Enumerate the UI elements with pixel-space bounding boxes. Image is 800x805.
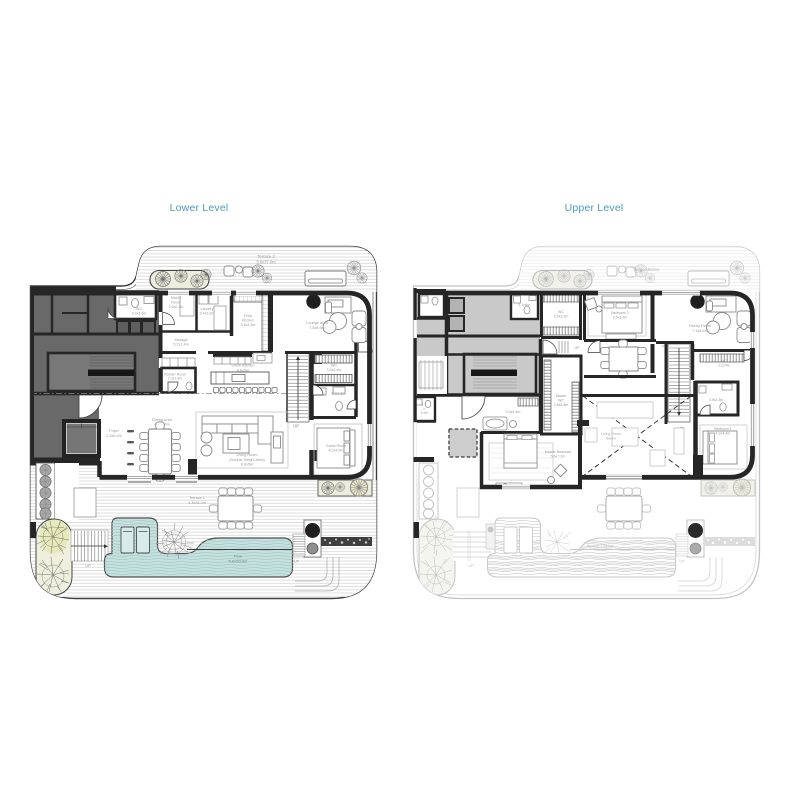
svg-text:Terrace 1 Below: Terrace 1 Below bbox=[586, 544, 613, 548]
svg-text:7.6x4.5m: 7.6x4.5m bbox=[309, 326, 325, 330]
svg-text:UP: UP bbox=[575, 346, 581, 350]
svg-text:1.2x4m: 1.2x4m bbox=[718, 364, 730, 368]
svg-text:2.4m: 2.4m bbox=[420, 411, 427, 415]
svg-text:5.6x7.3m: 5.6x7.3m bbox=[551, 455, 566, 459]
svg-text:Master Bedroom: Master Bedroom bbox=[545, 450, 572, 454]
svg-text:Lounge Area: Lounge Area bbox=[306, 321, 328, 325]
svg-text:3.5x3.9m: 3.5x3.9m bbox=[613, 316, 628, 320]
svg-text:3.5x4.5m: 3.5x4.5m bbox=[241, 323, 256, 327]
svg-text:Terrace Below: Terrace Below bbox=[633, 267, 661, 272]
svg-text:Room: Room bbox=[171, 301, 181, 305]
svg-text:Kitchen: Kitchen bbox=[242, 319, 254, 323]
svg-text:Upper Level: Upper Level bbox=[565, 202, 624, 214]
svg-text:WC: WC bbox=[136, 307, 143, 311]
svg-text:Dining Area: Dining Area bbox=[152, 418, 173, 422]
svg-text:5.8x50.0m: 5.8x50.0m bbox=[229, 559, 248, 564]
svg-text:WC: WC bbox=[558, 310, 564, 314]
svg-text:3.0x2.5m: 3.0x2.5m bbox=[331, 392, 345, 396]
svg-text:Living Room: Living Room bbox=[601, 432, 621, 436]
svg-text:Prep: Prep bbox=[244, 314, 252, 318]
svg-text:Bedroom 1: Bedroom 1 bbox=[714, 427, 732, 431]
svg-text:7.3x4.4m: 7.3x4.4m bbox=[692, 329, 708, 333]
svg-text:(Double Height Area): (Double Height Area) bbox=[229, 458, 265, 462]
svg-text:UP: UP bbox=[468, 564, 474, 568]
svg-text:UP: UP bbox=[85, 564, 91, 568]
svg-text:UP: UP bbox=[293, 424, 299, 429]
svg-text:4.2x4.5m: 4.2x4.5m bbox=[329, 449, 344, 453]
svg-text:Below: Below bbox=[606, 437, 616, 441]
svg-text:8.6x5m: 8.6x5m bbox=[241, 463, 253, 467]
svg-text:Family Room: Family Room bbox=[689, 324, 711, 328]
svg-text:WC: WC bbox=[721, 359, 727, 363]
svg-text:Living Room: Living Room bbox=[236, 453, 257, 457]
svg-text:2.6x2.1m: 2.6x2.1m bbox=[169, 305, 184, 309]
svg-text:2.3x5.4m: 2.3x5.4m bbox=[106, 434, 122, 438]
svg-text:2.3x1.6m: 2.3x1.6m bbox=[168, 377, 182, 381]
svg-text:5.2x1.4m: 5.2x1.4m bbox=[173, 343, 189, 347]
svg-text:UP: UP bbox=[294, 560, 300, 564]
svg-text:Master: Master bbox=[556, 394, 568, 398]
svg-text:Foyer: Foyer bbox=[109, 429, 119, 433]
svg-text:Lower Level: Lower Level bbox=[170, 202, 229, 214]
svg-text:4.2x4.4m: 4.2x4.4m bbox=[716, 432, 731, 436]
svg-text:3.1x6m: 3.1x6m bbox=[518, 303, 530, 307]
svg-text:WC: WC bbox=[558, 399, 564, 403]
svg-text:Terrace 2: Terrace 2 bbox=[257, 254, 275, 259]
svg-text:3.0x4.4m: 3.0x4.4m bbox=[506, 410, 521, 414]
svg-text:UP: UP bbox=[680, 560, 686, 564]
svg-text:Bedroom 2: Bedroom 2 bbox=[611, 311, 629, 315]
svg-text:3.0x1.6m: 3.0x1.6m bbox=[132, 312, 147, 316]
svg-text:2.4x3.2m: 2.4x3.2m bbox=[200, 312, 215, 316]
svg-text:2.9x3.3m: 2.9x3.3m bbox=[554, 315, 569, 319]
svg-text:Terrace 1: Terrace 1 bbox=[189, 496, 205, 500]
svg-text:2.8x5.8m: 2.8x5.8m bbox=[554, 403, 568, 407]
svg-text:Storage: Storage bbox=[174, 338, 187, 342]
svg-text:Laundry: Laundry bbox=[201, 307, 214, 311]
svg-text:3.9x2.3m: 3.9x2.3m bbox=[709, 398, 723, 402]
svg-text:Maid's: Maid's bbox=[171, 296, 181, 300]
svg-text:Guest Room: Guest Room bbox=[326, 444, 346, 448]
svg-text:3.0x2.4m: 3.0x2.4m bbox=[327, 368, 342, 372]
svg-text:4.3x26.0m: 4.3x26.0m bbox=[188, 501, 206, 505]
svg-text:3.6x37.0m: 3.6x37.0m bbox=[256, 260, 276, 265]
svg-text:WC: WC bbox=[331, 364, 338, 368]
svg-text:Show Kitchen: Show Kitchen bbox=[231, 364, 254, 368]
